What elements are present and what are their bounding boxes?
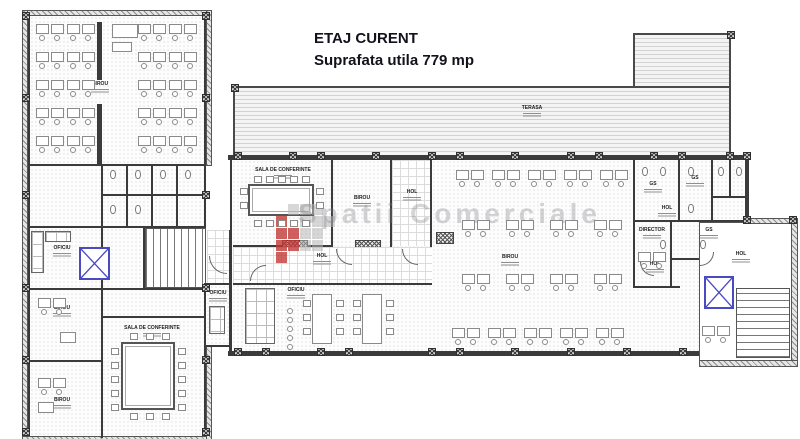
chair [578, 339, 584, 345]
staircase [736, 288, 790, 358]
desk [638, 252, 651, 262]
desk [452, 328, 465, 338]
chair [386, 328, 394, 335]
desk [506, 274, 519, 284]
column-marker [202, 191, 210, 199]
chair [141, 91, 147, 97]
chair [470, 339, 476, 345]
chair [509, 285, 515, 291]
chair [141, 147, 147, 153]
desk [717, 326, 730, 336]
chair [156, 91, 162, 97]
toilet-icon [185, 170, 191, 179]
floor-plan: Spatii Comerciale ETAJ CURENT Suprafata … [0, 0, 800, 439]
desk [169, 108, 182, 118]
desk [615, 170, 628, 180]
conference-table [121, 342, 175, 410]
chair [54, 35, 60, 41]
desk [560, 328, 573, 338]
desk [594, 220, 607, 230]
desk [169, 52, 182, 62]
chair [178, 348, 186, 355]
chair [156, 35, 162, 41]
desk [169, 24, 182, 34]
desk [462, 274, 475, 284]
wall [233, 283, 432, 285]
watermark-logo-block [276, 252, 287, 263]
chair [353, 314, 361, 321]
desk [36, 80, 49, 90]
chair [386, 314, 394, 321]
chair [303, 314, 311, 321]
column-marker [428, 152, 436, 160]
column-marker [22, 12, 30, 20]
chair [56, 309, 62, 315]
desk [38, 378, 51, 388]
column-marker [22, 428, 30, 436]
wall [711, 196, 747, 198]
desk [51, 108, 64, 118]
desk [594, 274, 607, 284]
wall [228, 155, 749, 160]
wall [670, 222, 672, 288]
plan-title-line1: ETAJ CURENT [314, 28, 474, 50]
stool [287, 317, 293, 323]
chair [178, 404, 186, 411]
desk [477, 220, 490, 230]
chair [70, 63, 76, 69]
column-marker [511, 348, 519, 356]
wall [729, 158, 731, 198]
column-marker [262, 348, 270, 356]
chair [302, 220, 310, 227]
canteen-table [312, 294, 332, 344]
chair [546, 181, 552, 187]
room-label-oficiu: OFICIU [276, 288, 316, 299]
desk [82, 108, 95, 118]
desk [507, 170, 520, 180]
desk [138, 52, 151, 62]
chair [567, 181, 573, 187]
chair [111, 362, 119, 369]
desk [550, 274, 563, 284]
wall [101, 316, 206, 318]
watermark-logo-block [312, 240, 323, 251]
chair [70, 35, 76, 41]
partition-screen [97, 104, 102, 164]
desk [564, 170, 577, 180]
room-label-hol: HOL [726, 252, 756, 263]
column-marker [202, 284, 210, 292]
desk [550, 220, 563, 230]
wall [101, 194, 206, 196]
desk [184, 108, 197, 118]
chair [303, 300, 311, 307]
wall [28, 164, 206, 166]
chair [111, 404, 119, 411]
column-marker [234, 348, 242, 356]
chair [720, 337, 726, 343]
chair [85, 63, 91, 69]
chair [240, 202, 248, 209]
desk [524, 328, 537, 338]
column-marker [317, 152, 325, 160]
desk [67, 80, 80, 90]
chair [316, 188, 324, 195]
room-label-birou: BIROU [488, 255, 532, 266]
chair [266, 220, 274, 227]
chair [187, 91, 193, 97]
desk [184, 136, 197, 146]
chair [54, 147, 60, 153]
chair [85, 91, 91, 97]
chair [491, 339, 497, 345]
stool [287, 326, 293, 332]
desk [611, 328, 624, 338]
desk [112, 24, 138, 38]
chair [156, 147, 162, 153]
chair [302, 176, 310, 183]
chair [39, 35, 45, 41]
chair [141, 35, 147, 41]
desk [467, 328, 480, 338]
desk [462, 220, 475, 230]
staircase [145, 228, 206, 288]
chair [178, 376, 186, 383]
desk [169, 136, 182, 146]
chair [336, 314, 344, 321]
chair [111, 376, 119, 383]
room-label-gs: GS [638, 182, 668, 193]
column-marker [623, 348, 631, 356]
chair [480, 231, 486, 237]
chair [130, 413, 138, 420]
watermark-logo-block [276, 228, 287, 239]
desk [488, 328, 501, 338]
chair [111, 390, 119, 397]
chair [85, 147, 91, 153]
chair [240, 188, 248, 195]
wall [228, 351, 704, 356]
desk [67, 136, 80, 146]
desk [506, 220, 519, 230]
chair [146, 413, 154, 420]
room-label-hol: HOL [395, 190, 429, 201]
column-marker [595, 152, 603, 160]
wall [22, 10, 28, 439]
chair [303, 328, 311, 335]
desk [53, 378, 66, 388]
partition-screen [97, 22, 102, 80]
desk [138, 136, 151, 146]
desk [528, 170, 541, 180]
chair [480, 285, 486, 291]
column-marker [456, 152, 464, 160]
column-marker [22, 356, 30, 364]
canteen-table [362, 294, 382, 344]
terrace [233, 86, 731, 158]
wall [101, 164, 103, 438]
toilet-icon [135, 170, 141, 179]
toilet-icon [642, 167, 648, 176]
wall [791, 218, 798, 366]
chair [618, 181, 624, 187]
desk [521, 274, 534, 284]
desk [565, 220, 578, 230]
desk [67, 52, 80, 62]
column-marker [234, 152, 242, 160]
wall [699, 360, 798, 367]
kitchen-counter [209, 306, 225, 334]
chair [524, 285, 530, 291]
column-marker [202, 12, 210, 20]
elevator-icon [704, 276, 734, 309]
chair [465, 285, 471, 291]
column-marker [789, 216, 797, 224]
room-label-hol: HOL [652, 206, 682, 217]
chair [465, 231, 471, 237]
chair [187, 35, 193, 41]
toilet-icon [160, 170, 166, 179]
chair [597, 285, 603, 291]
chair [54, 91, 60, 97]
desk [82, 52, 95, 62]
watermark-logo-block [288, 240, 299, 251]
desk [521, 220, 534, 230]
chair [353, 328, 361, 335]
chair [641, 263, 647, 269]
chair [386, 300, 394, 307]
chair [39, 147, 45, 153]
chair [141, 119, 147, 125]
chair [568, 285, 574, 291]
desk [51, 52, 64, 62]
chair [156, 63, 162, 69]
chair [278, 220, 286, 227]
column-marker [678, 152, 686, 160]
chair [582, 181, 588, 187]
chair [612, 231, 618, 237]
wall [22, 10, 212, 16]
chair [614, 339, 620, 345]
column-marker [650, 152, 658, 160]
column-marker [372, 152, 380, 160]
wall [28, 360, 103, 362]
chair [705, 337, 711, 343]
chair [172, 147, 178, 153]
column-marker [679, 348, 687, 356]
desk [184, 80, 197, 90]
desk [609, 220, 622, 230]
wall [206, 10, 212, 166]
desk [153, 52, 166, 62]
chair [603, 181, 609, 187]
chair [162, 413, 170, 420]
chair [39, 119, 45, 125]
chair [39, 63, 45, 69]
chair [146, 333, 154, 340]
room-label-gs: GS [682, 176, 708, 187]
desk [579, 170, 592, 180]
desk [184, 52, 197, 62]
chair [178, 390, 186, 397]
desk [565, 274, 578, 284]
chair [172, 63, 178, 69]
room-label-terasa: TERASA [502, 106, 562, 117]
chair [39, 91, 45, 97]
chair [41, 389, 47, 395]
column-marker [345, 348, 353, 356]
chair [111, 348, 119, 355]
chair [553, 285, 559, 291]
desk [51, 136, 64, 146]
wall [745, 155, 749, 222]
chair [41, 309, 47, 315]
desk [38, 402, 54, 413]
desk [112, 42, 132, 52]
desk [38, 298, 51, 308]
column-marker [231, 84, 239, 92]
chair [563, 339, 569, 345]
chair [510, 181, 516, 187]
chair [172, 91, 178, 97]
desk [702, 326, 715, 336]
radiator [436, 232, 454, 244]
wall [633, 286, 680, 288]
toilet-icon [135, 205, 141, 214]
toilet-icon [736, 167, 742, 176]
plan-title: ETAJ CURENT Suprafata utila 779 mp [314, 28, 474, 72]
chair [187, 119, 193, 125]
desk [82, 24, 95, 34]
chair [459, 181, 465, 187]
chair [172, 35, 178, 41]
column-marker [567, 348, 575, 356]
desk [36, 136, 49, 146]
chair [70, 119, 76, 125]
wall [711, 158, 713, 222]
chair [178, 362, 186, 369]
desk [67, 24, 80, 34]
desk [82, 136, 95, 146]
chair [70, 147, 76, 153]
chair [506, 339, 512, 345]
desk [184, 24, 197, 34]
chair [162, 333, 170, 340]
chair [597, 231, 603, 237]
room-label-oficiu: OFICIU [40, 246, 84, 257]
chair [254, 176, 262, 183]
chair [187, 63, 193, 69]
desk [82, 80, 95, 90]
chair [495, 181, 501, 187]
desk [138, 80, 151, 90]
room-label-hol: HOL [302, 254, 342, 265]
room-label-director: DIRECTOR [634, 228, 670, 239]
chair [187, 147, 193, 153]
column-marker [511, 152, 519, 160]
wall [633, 158, 635, 288]
toilet-icon [688, 167, 694, 176]
chair [156, 119, 162, 125]
plan-title-line2: Suprafata utila 779 mp [314, 50, 474, 72]
desk [53, 298, 66, 308]
desk [543, 170, 556, 180]
chair [474, 181, 480, 187]
column-marker [22, 284, 30, 292]
desk [138, 108, 151, 118]
watermark-logo-block [276, 240, 287, 251]
chair [278, 176, 286, 183]
chair [290, 176, 298, 183]
chair [316, 202, 324, 209]
chair [54, 63, 60, 69]
column-marker [202, 94, 210, 102]
chair [553, 231, 559, 237]
desk [36, 108, 49, 118]
toilet-icon [700, 240, 706, 249]
desk [153, 80, 166, 90]
desk [653, 252, 666, 262]
chair [336, 300, 344, 307]
chair [172, 119, 178, 125]
chair [542, 339, 548, 345]
desk [36, 52, 49, 62]
stool [287, 335, 293, 341]
desk [138, 24, 151, 34]
terrace-upper [633, 33, 731, 89]
desk [51, 24, 64, 34]
desk [456, 170, 469, 180]
desk [60, 332, 76, 343]
toilet-icon [110, 205, 116, 214]
room-label-oficiu: OFICIU [204, 291, 232, 302]
column-marker [727, 31, 735, 39]
chair [130, 333, 138, 340]
column-marker [743, 152, 751, 160]
chair [455, 339, 461, 345]
column-marker [743, 216, 751, 224]
chair [290, 220, 298, 227]
desk [51, 80, 64, 90]
chair [531, 181, 537, 187]
column-marker [22, 94, 30, 102]
desk [153, 108, 166, 118]
chair [266, 176, 274, 183]
chair [141, 63, 147, 69]
room-label-birou: BIROU [338, 196, 386, 207]
canteen-counter [245, 288, 275, 344]
desk [596, 328, 609, 338]
toilet-icon [688, 204, 694, 213]
watermark-logo-block [300, 240, 311, 251]
desk [609, 274, 622, 284]
column-marker [726, 152, 734, 160]
desk [36, 24, 49, 34]
chair [254, 220, 262, 227]
room-label-gs: GS [694, 228, 724, 239]
toilet-icon [660, 167, 666, 176]
column-marker [202, 356, 210, 364]
chair [509, 231, 515, 237]
chair [336, 328, 344, 335]
desk [67, 108, 80, 118]
chair [70, 91, 76, 97]
desk [575, 328, 588, 338]
desk [153, 24, 166, 34]
stool [287, 344, 293, 350]
chair [56, 389, 62, 395]
